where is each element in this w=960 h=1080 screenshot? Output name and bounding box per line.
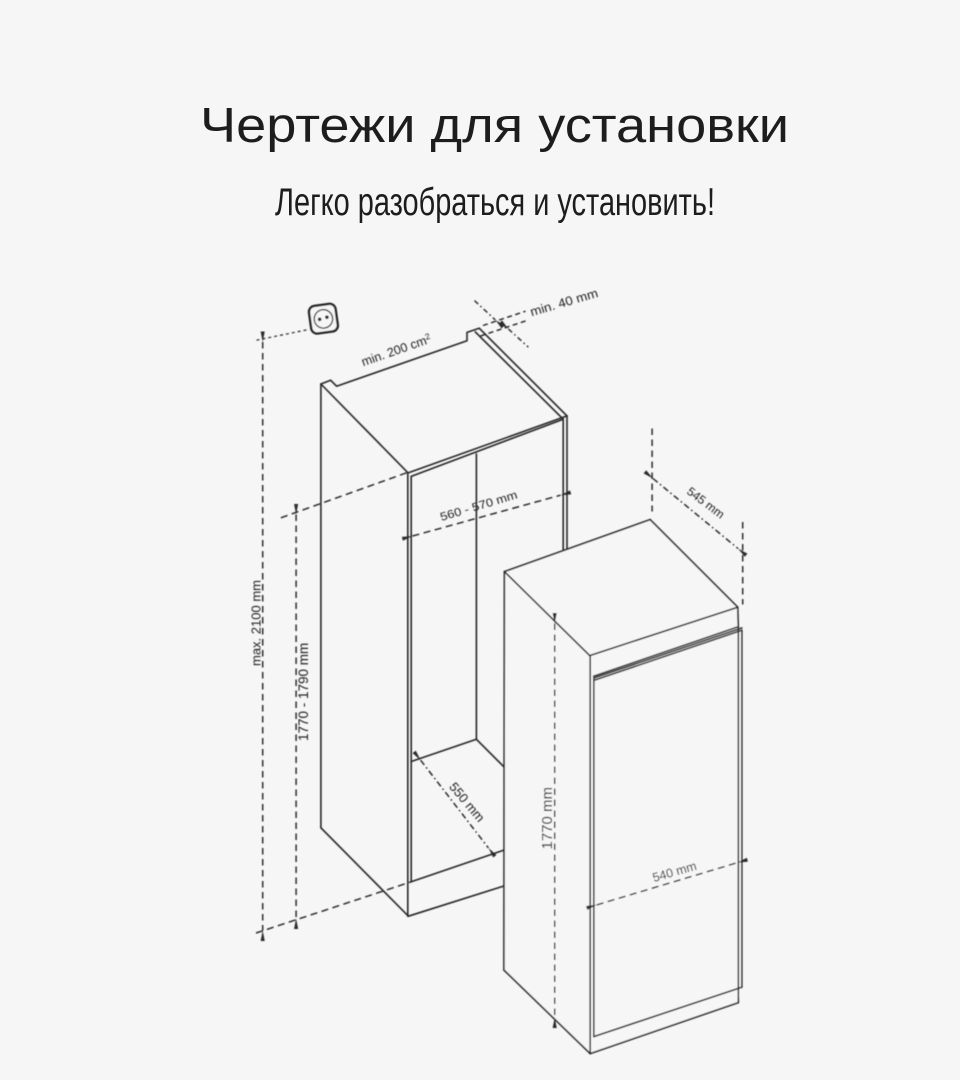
svg-text:Чертежи для установки: Чертежи для установки [200,98,789,153]
svg-text:1770 - 1790 mm: 1770 - 1790 mm [296,643,311,741]
svg-text:1770 mm: 1770 mm [539,787,556,850]
svg-text:max. 2100 mm: max. 2100 mm [249,580,264,666]
svg-text:Легко разобраться и установить: Легко разобраться и установить! [275,181,715,224]
